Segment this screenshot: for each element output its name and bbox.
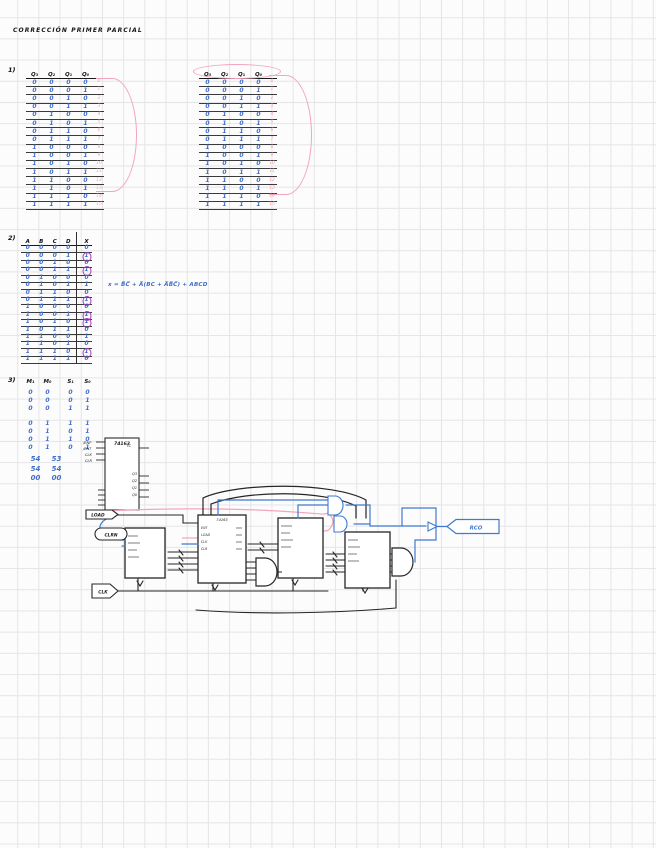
table-cell: 1 (62, 313, 76, 319)
table-cell: 0 (62, 445, 79, 451)
counter-block-3 (278, 518, 323, 578)
column-header: A (21, 239, 35, 245)
table-body: 0000000011001000011101000010110110001111… (21, 246, 92, 364)
table-cell: 0 (62, 305, 76, 311)
table-cell: 1 (21, 305, 35, 311)
table-body: 0000000011001020011301004010150110601117… (26, 79, 104, 210)
table-header: Q₃ Q₂ Q₁ Q₀ (26, 69, 104, 79)
table-cell: 1 (26, 153, 43, 159)
pink-wrap-arc (96, 78, 137, 192)
counter-block-1 (125, 528, 165, 578)
table-cell: 1 (21, 357, 35, 363)
table-cell: 1 (216, 112, 233, 118)
pin-label-tc: TC (126, 444, 131, 448)
table-cell: 0 (250, 129, 267, 135)
counter-block-4 (345, 532, 390, 588)
table-cell: 0 (21, 291, 35, 297)
table-cell: 1 (81, 298, 92, 304)
column-header: Q₂ (43, 72, 60, 78)
state-table-2: Q₃ Q₂ Q₁ Q₀ 0000000011001020011301004010… (199, 69, 277, 210)
table-cell: 1 (250, 137, 267, 143)
table-row: 00011 (26, 87, 104, 95)
table-cell: 1 (199, 194, 216, 200)
table-cell: 0 (62, 320, 76, 326)
table-cell: 1 (81, 320, 92, 326)
table-cell: 1 (39, 421, 56, 427)
table-row: 00102 (199, 95, 277, 103)
table-cell: 0 (21, 283, 35, 289)
table-cell: 0 (216, 145, 233, 151)
boolean-equation: x = B̅C̅ + A̅(BC + A̅B̅C̅) + ABCD (108, 282, 208, 288)
and-gate-2 (392, 548, 413, 576)
table-row: 0011 (22, 405, 96, 413)
table-cell: 1 (233, 170, 250, 176)
table-row: 00113 (199, 104, 277, 112)
load-tag-label: LOAD (91, 513, 105, 519)
table-cell: 1 (26, 186, 43, 192)
table-cell: 1 (77, 121, 94, 127)
table-row: 110012 (26, 177, 104, 185)
table-cell: 53 (46, 456, 67, 463)
table-cell: 0 (60, 112, 77, 118)
table-cell: 1 (43, 121, 60, 127)
table-cell: 0 (62, 390, 79, 396)
table-cell: 0 (43, 96, 60, 102)
table-row: 0000 (25, 474, 67, 484)
table-cell: 1 (81, 335, 92, 341)
table-cell: 0 (62, 276, 76, 282)
table-cell: 15 (267, 203, 277, 208)
table-cell: 0 (77, 129, 94, 135)
table-cell: 1 (35, 276, 49, 282)
table-cell: 1 (233, 129, 250, 135)
table-cell: 1 (62, 406, 79, 412)
table-cell: 0 (62, 335, 76, 341)
table-cell: 0 (250, 80, 267, 86)
table-cell: 1 (21, 328, 35, 334)
table-row: 11110 (21, 357, 92, 364)
table-cell: 0 (77, 194, 94, 200)
table-cell: 0 (48, 254, 62, 260)
table-cell: 0 (233, 178, 250, 184)
table-cell: 1 (48, 328, 62, 334)
table-cell: 0 (22, 445, 39, 451)
table-row: 110113 (26, 185, 104, 193)
table-cell: 0 (77, 80, 94, 86)
table-cell: 1 (43, 186, 60, 192)
table-cell: 1 (216, 202, 233, 208)
table-cell: 0 (199, 129, 216, 135)
table-cell: 1 (26, 145, 43, 151)
notebook-page: CORRECCIÓN PRIMER PARCIAL 1) Q₃ Q₂ Q₁ Q₀… (0, 0, 656, 848)
table-cell: 1 (216, 121, 233, 127)
table-row: 00113 (26, 104, 104, 112)
column-header: D (62, 239, 76, 245)
table-cell: 0 (62, 398, 79, 404)
table-cell: 1 (250, 88, 267, 94)
table-row: 111014 (26, 194, 104, 202)
table-cell: 1 (39, 429, 56, 435)
table-cell: 1 (81, 268, 92, 274)
table-cell: 0 (216, 80, 233, 86)
table-cell: 1 (250, 104, 267, 110)
table-cell: 0 (21, 246, 35, 252)
table-cell: 1 (81, 350, 92, 356)
table-cell: 0 (43, 170, 60, 176)
table-row: 111115 (199, 202, 277, 210)
table-cell: 0 (21, 261, 35, 267)
table-cell: 1 (233, 202, 250, 208)
table-cell: 1 (233, 104, 250, 110)
section-3-label: 3) (8, 376, 16, 384)
mux-table-header: M₁ M₀ S₁ S₀ (22, 376, 96, 385)
table-cell: 14 (267, 195, 277, 200)
table-cell: 1 (62, 328, 76, 334)
table-cell: 1 (48, 320, 62, 326)
table-cell: 0 (35, 268, 49, 274)
pin-label-enp: /ENP (82, 441, 92, 445)
table-row: 0111 (22, 420, 96, 428)
table-cell: 1 (77, 137, 94, 143)
table-cell: 1 (77, 88, 94, 94)
table-row: 5453 (25, 455, 67, 465)
column-header: M₁ (22, 379, 39, 385)
table-cell: 0 (60, 178, 77, 184)
table-cell: 0 (48, 335, 62, 341)
table-cell: 0 (21, 276, 35, 282)
pin-label-q2: Q2 (132, 479, 137, 483)
column-header: S₁ (62, 379, 79, 385)
table-cell: 54 (25, 466, 46, 473)
table-cell: 1 (199, 178, 216, 184)
table-cell: 1 (60, 129, 77, 135)
table-cell: 0 (35, 261, 49, 267)
table-cell: 1 (79, 421, 96, 427)
table-row: 01106 (199, 128, 277, 136)
table-row: 00000 (199, 79, 277, 87)
table-cell: 1 (62, 283, 76, 289)
table-row: 01117 (199, 136, 277, 144)
clrn-tag-label: CLRN (104, 533, 117, 539)
truth-table: A B C D X 000000001100100001110100001011… (21, 236, 92, 364)
table-cell: 1 (48, 291, 62, 297)
block-pin-clk: CLK (201, 540, 208, 544)
table-row: 01117 (26, 136, 104, 144)
table-cell: 1 (43, 202, 60, 208)
column-header: S₀ (79, 379, 96, 385)
table-cell: 1 (199, 145, 216, 151)
table-cell: 0 (60, 186, 77, 192)
table-cell: 1 (199, 186, 216, 192)
table-cell: 1 (21, 335, 35, 341)
table-cell: 0 (62, 291, 76, 297)
table-row: 101010 (199, 161, 277, 169)
table-cell: 0 (233, 121, 250, 127)
pink-header-oval (193, 64, 281, 79)
table-cell: 1 (250, 153, 267, 159)
table-row: 00000 (26, 79, 104, 87)
table-cell: 0 (250, 194, 267, 200)
table-cell: 0 (60, 145, 77, 151)
table-cell: 0 (60, 88, 77, 94)
table-cell: 1 (62, 342, 76, 348)
table-row: 01106 (26, 128, 104, 136)
table-row: 111115 (26, 202, 104, 210)
table-cell: 0 (60, 153, 77, 159)
table-cell: 1 (250, 121, 267, 127)
table-cell: 0 (43, 145, 60, 151)
table-cell: 1 (60, 137, 77, 143)
column-header: X (81, 239, 92, 245)
section-2-label: 2) (8, 234, 16, 242)
table-cell: 1 (233, 137, 250, 143)
table-cell: 0 (216, 96, 233, 102)
table-cell: 1 (60, 202, 77, 208)
table-cell: 0 (43, 80, 60, 86)
table-cell: 1 (39, 437, 56, 443)
pin-label-ent: /ENT (82, 447, 92, 451)
table-cell: 0 (48, 305, 62, 311)
mux-table-group-1: 000000010011 (22, 389, 96, 413)
table-cell: 0 (21, 298, 35, 304)
column-header: B (35, 239, 49, 245)
table-cell: 1 (48, 268, 62, 274)
table-cell: 1 (60, 104, 77, 110)
table-cell: 1 (77, 186, 94, 192)
table-cell: 1 (199, 161, 216, 167)
table-row: 101111 (26, 169, 104, 177)
table-row: 10008 (199, 145, 277, 153)
table-cell: 0 (233, 186, 250, 192)
table-row: 5454 (25, 465, 67, 475)
table-row: 10019 (26, 153, 104, 161)
table-cell: 1 (62, 254, 76, 260)
table-cell: 0 (35, 320, 49, 326)
table-cell: 0 (81, 357, 92, 363)
table-cell: 00 (46, 475, 67, 482)
table-cell: 1 (233, 96, 250, 102)
table-cell: 1 (35, 283, 49, 289)
table-cell: 0 (60, 80, 77, 86)
table-cell: 1 (21, 350, 35, 356)
table-cell: 1 (60, 161, 77, 167)
pin-label-q3: Q3 (132, 472, 137, 476)
table-cell: 1 (216, 186, 233, 192)
table-cell: 0 (216, 153, 233, 159)
table-cell: 0 (21, 268, 35, 274)
table-cell: 1 (48, 350, 62, 356)
table-cell: 0 (62, 246, 76, 252)
table-cell: 1 (35, 342, 49, 348)
table-body: 0000000011001020011301004010150110601117… (199, 79, 277, 210)
table-cell: 0 (48, 283, 62, 289)
state-table-1: Q₃ Q₂ Q₁ Q₀ 0000000011001020011301004010… (26, 69, 104, 210)
table-cell: 0 (216, 104, 233, 110)
table-cell: 0 (48, 276, 62, 282)
table-cell: 1 (77, 104, 94, 110)
table-cell: 0 (233, 145, 250, 151)
table-cell: 1 (35, 291, 49, 297)
table-cell: 0 (35, 254, 49, 260)
table-cell: 0 (216, 170, 233, 176)
table-cell: 0 (48, 313, 62, 319)
table-cell: 1 (77, 170, 94, 176)
table-cell: 0 (62, 350, 76, 356)
table-cell: 0 (26, 137, 43, 143)
table-cell: 1 (21, 320, 35, 326)
table-cell: 1 (21, 313, 35, 319)
table-cell: 0 (43, 104, 60, 110)
table-cell: 1 (62, 298, 76, 304)
table-row: 10019 (199, 153, 277, 161)
table-cell: 1 (216, 178, 233, 184)
table-cell: 1 (43, 178, 60, 184)
table-cell: 0 (22, 421, 39, 427)
table-cell: 54 (25, 456, 46, 463)
table-cell: 1 (77, 202, 94, 208)
table-cell: 0 (233, 153, 250, 159)
table-row: 101111 (199, 169, 277, 177)
table-cell: 0 (22, 429, 39, 435)
table-cell: 0 (81, 276, 92, 282)
table-cell: 0 (77, 96, 94, 102)
table-cell: 0 (79, 390, 96, 396)
table-cell: 1 (26, 170, 43, 176)
table-cell: 1 (43, 137, 60, 143)
table-cell: 0 (26, 129, 43, 135)
table-row: 00011 (199, 87, 277, 95)
table-cell: 0 (35, 313, 49, 319)
table-cell: 1 (199, 202, 216, 208)
table-cell: 1 (216, 137, 233, 143)
block-label: 74163 (216, 518, 228, 522)
column-header: M₀ (39, 379, 56, 385)
block-pin-load: LOAD (201, 533, 211, 537)
table-cell: 0 (250, 178, 267, 184)
table-cell: 0 (233, 80, 250, 86)
table-cell: 1 (79, 398, 96, 404)
table-cell: 1 (60, 170, 77, 176)
table-row: 0000 (22, 389, 96, 397)
table-cell: 0 (43, 88, 60, 94)
table-cell: 0 (199, 104, 216, 110)
table-cell: 0 (81, 328, 92, 334)
table-row: 0001 (22, 397, 96, 405)
table-cell: 1 (26, 178, 43, 184)
table-cell: 0 (250, 145, 267, 151)
table-row: 01015 (26, 120, 104, 128)
table-cell: 0 (77, 112, 94, 118)
table-cell: 0 (21, 254, 35, 260)
column-header: Q₃ (26, 72, 43, 78)
table-cell: 1 (216, 129, 233, 135)
table-row: 111014 (199, 194, 277, 202)
table-cell: 1 (60, 96, 77, 102)
table-cell: 0 (216, 88, 233, 94)
table-cell: 1 (43, 112, 60, 118)
column-header: C (48, 239, 62, 245)
table-cell: 1 (35, 350, 49, 356)
table-row: 01004 (199, 112, 277, 120)
table-cell: 1 (26, 202, 43, 208)
table-cell: 1 (199, 153, 216, 159)
table-cell: 0 (26, 104, 43, 110)
table-cell: 0 (39, 398, 56, 404)
block-pin-ent: ENT (201, 526, 209, 530)
table-cell: 1 (233, 161, 250, 167)
table-cell: 1 (35, 335, 49, 341)
table-cell: 0 (22, 437, 39, 443)
table-cell: 0 (39, 390, 56, 396)
table-row: 110113 (199, 185, 277, 193)
table-row: 10008 (26, 145, 104, 153)
table-row: 01015 (199, 120, 277, 128)
table-cell: 1 (62, 421, 79, 427)
table-row: 110012 (199, 177, 277, 185)
table-row: 101010 (26, 161, 104, 169)
table-cell: 0 (77, 145, 94, 151)
table-row: 00102 (26, 95, 104, 103)
table-cell: 0 (48, 342, 62, 348)
table-cell: 0 (77, 178, 94, 184)
blue-and-gate-1 (328, 496, 343, 515)
table-cell: 0 (250, 96, 267, 102)
table-cell: 0 (26, 88, 43, 94)
table-cell: 0 (22, 398, 39, 404)
table-cell: 1 (39, 445, 56, 451)
table-cell: 0 (199, 112, 216, 118)
table-cell: 0 (43, 153, 60, 159)
table-cell: 1 (62, 437, 79, 443)
table-cell: 0 (26, 112, 43, 118)
table-cell: 1 (48, 298, 62, 304)
blue-and-gate-2 (334, 516, 347, 532)
table-cell: 0 (250, 161, 267, 167)
table-cell: 0 (233, 88, 250, 94)
table-cell: 1 (62, 268, 76, 274)
table-header: M₁ M₀ S₁ S₀ (22, 376, 96, 385)
table-cell: 0 (233, 112, 250, 118)
pin-label-clr: CLR (85, 459, 93, 463)
circuit-diagram: 74163 ENT LOAD CLK CLR (78, 488, 520, 620)
table-cell: 0 (199, 88, 216, 94)
table-cell: 1 (48, 357, 62, 363)
table-cell: 0 (35, 246, 49, 252)
table-cell: 1 (62, 357, 76, 363)
table-cell: 1 (216, 194, 233, 200)
table-cell: 1 (26, 161, 43, 167)
output-separator-line (76, 232, 77, 364)
table-cell: 0 (22, 390, 39, 396)
table-cell: 1 (21, 342, 35, 348)
table-cell: 15 (94, 203, 104, 208)
table-cell: 0 (199, 80, 216, 86)
table-cell: 1 (250, 202, 267, 208)
table-cell: 1 (79, 406, 96, 412)
pink-wrap-arc (269, 75, 312, 195)
table-row: 01004 (26, 112, 104, 120)
table-cell: 1 (35, 298, 49, 304)
table-cell: 0 (48, 246, 62, 252)
table-cell: 1 (250, 170, 267, 176)
table-cell: 0 (39, 406, 56, 412)
table-cell: 0 (35, 328, 49, 334)
table-cell: 1 (77, 153, 94, 159)
table-cell: 1 (43, 194, 60, 200)
block-pin-clr: CLR (201, 547, 207, 551)
table-cell: 0 (26, 121, 43, 127)
table-cell: 1 (48, 261, 62, 267)
